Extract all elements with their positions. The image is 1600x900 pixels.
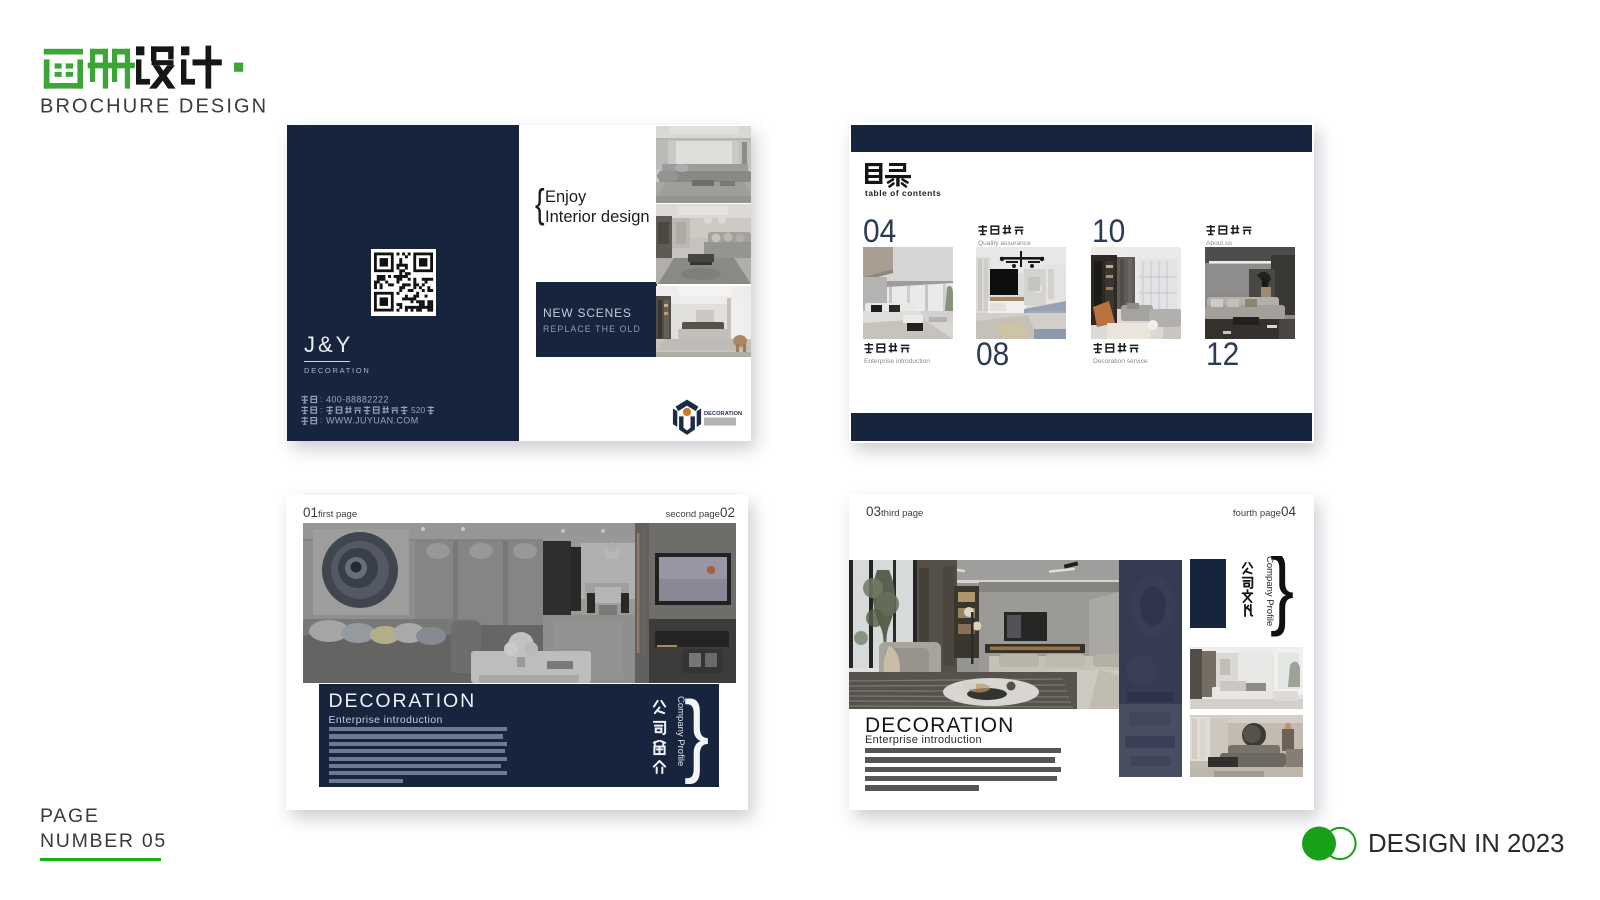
svg-text:WWW.JUYUAN.COM: WWW.JUYUAN.COM (326, 416, 419, 426)
svg-text:About us: About us (1206, 240, 1233, 247)
svg-text:table of contents: table of contents (865, 188, 941, 198)
svg-text::: : (320, 416, 322, 425)
svg-text:BROCHURE DESIGN: BROCHURE DESIGN (40, 96, 268, 118)
svg-text:Enterprise introduction: Enterprise introduction (864, 358, 930, 365)
svg-text:Quality assurance: Quality assurance (978, 240, 1031, 247)
svg-text:DECORATION: DECORATION (704, 411, 742, 417)
svg-text:}: } (1270, 556, 1294, 638)
svg-text:400-88882222: 400-88882222 (326, 395, 389, 405)
svg-text::: : (320, 406, 322, 415)
svg-text:520: 520 (411, 405, 425, 415)
svg-text::: : (320, 395, 322, 404)
svg-text:Decoration service: Decoration service (1093, 358, 1148, 365)
svg-text:}: } (684, 694, 709, 784)
